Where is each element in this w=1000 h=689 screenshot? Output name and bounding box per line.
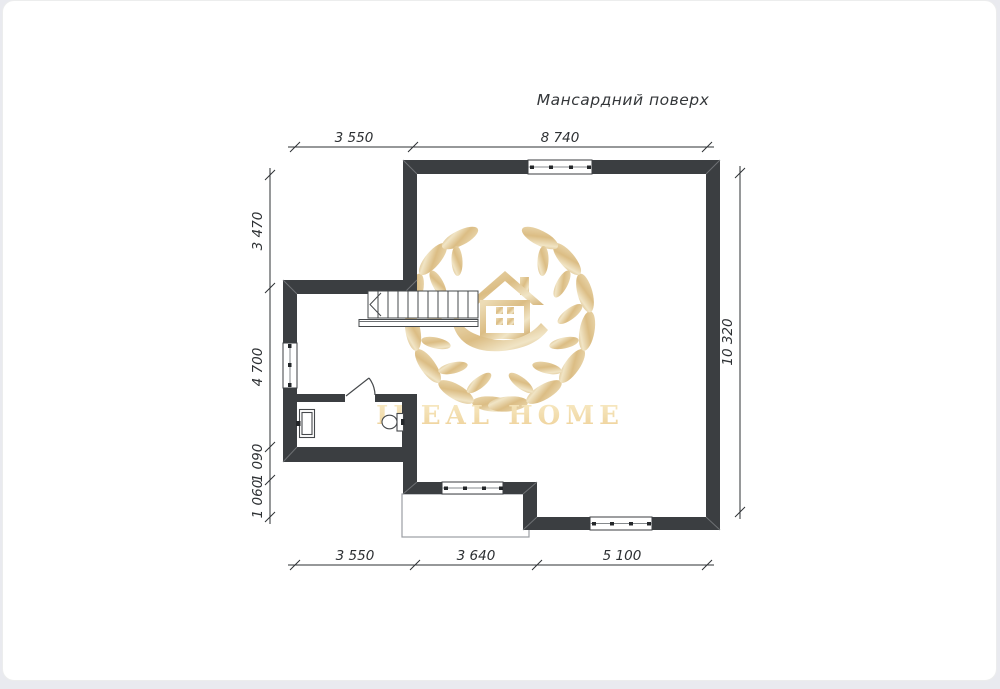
dim-right-1: 10 320 [720,318,736,365]
dim-top-2: 8 740 [541,130,580,146]
bathroom-door [346,378,375,396]
stairs-landing-rail [359,320,478,327]
dim-left-2: 4 700 [250,348,266,387]
dim-left-1: 3 470 [250,212,266,251]
stairs [359,291,478,327]
floor-plan-drawing: IDEAL HOME Мансардний поверх [0,0,1000,689]
wall-bathroom-top-left [292,394,345,402]
dim-left-4: 1 060 [250,480,266,519]
sink-icon [296,410,315,438]
dim-bottom-2: 3 640 [457,548,496,564]
wall-main-left [403,160,417,294]
dim-left-3: 1 090 [250,444,266,483]
balcony-outline [402,494,529,537]
window-left [283,343,297,388]
window-top [528,160,592,174]
window-bottom [590,517,652,530]
plan-title: Мансардний поверх [537,91,710,109]
dimension-line-left [265,168,275,524]
dim-bottom-1: 3 550 [336,548,375,564]
dimension-line-right [735,166,745,519]
wall-right [706,160,720,530]
dim-bottom-3: 5 100 [603,548,642,564]
dim-top-1: 3 550 [335,130,374,146]
window-lower-middle [442,482,503,494]
door-swing-arc [369,378,375,395]
door-leaf [346,378,369,396]
wall-extension-bottom [283,447,417,462]
